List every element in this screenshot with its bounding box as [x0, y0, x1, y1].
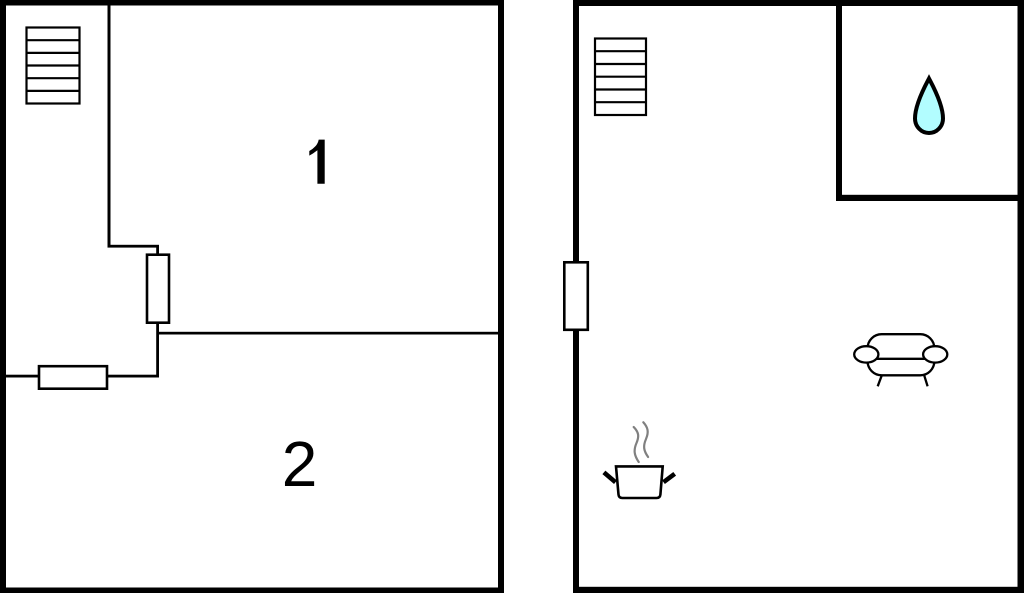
svg-text:2: 2	[282, 428, 318, 500]
